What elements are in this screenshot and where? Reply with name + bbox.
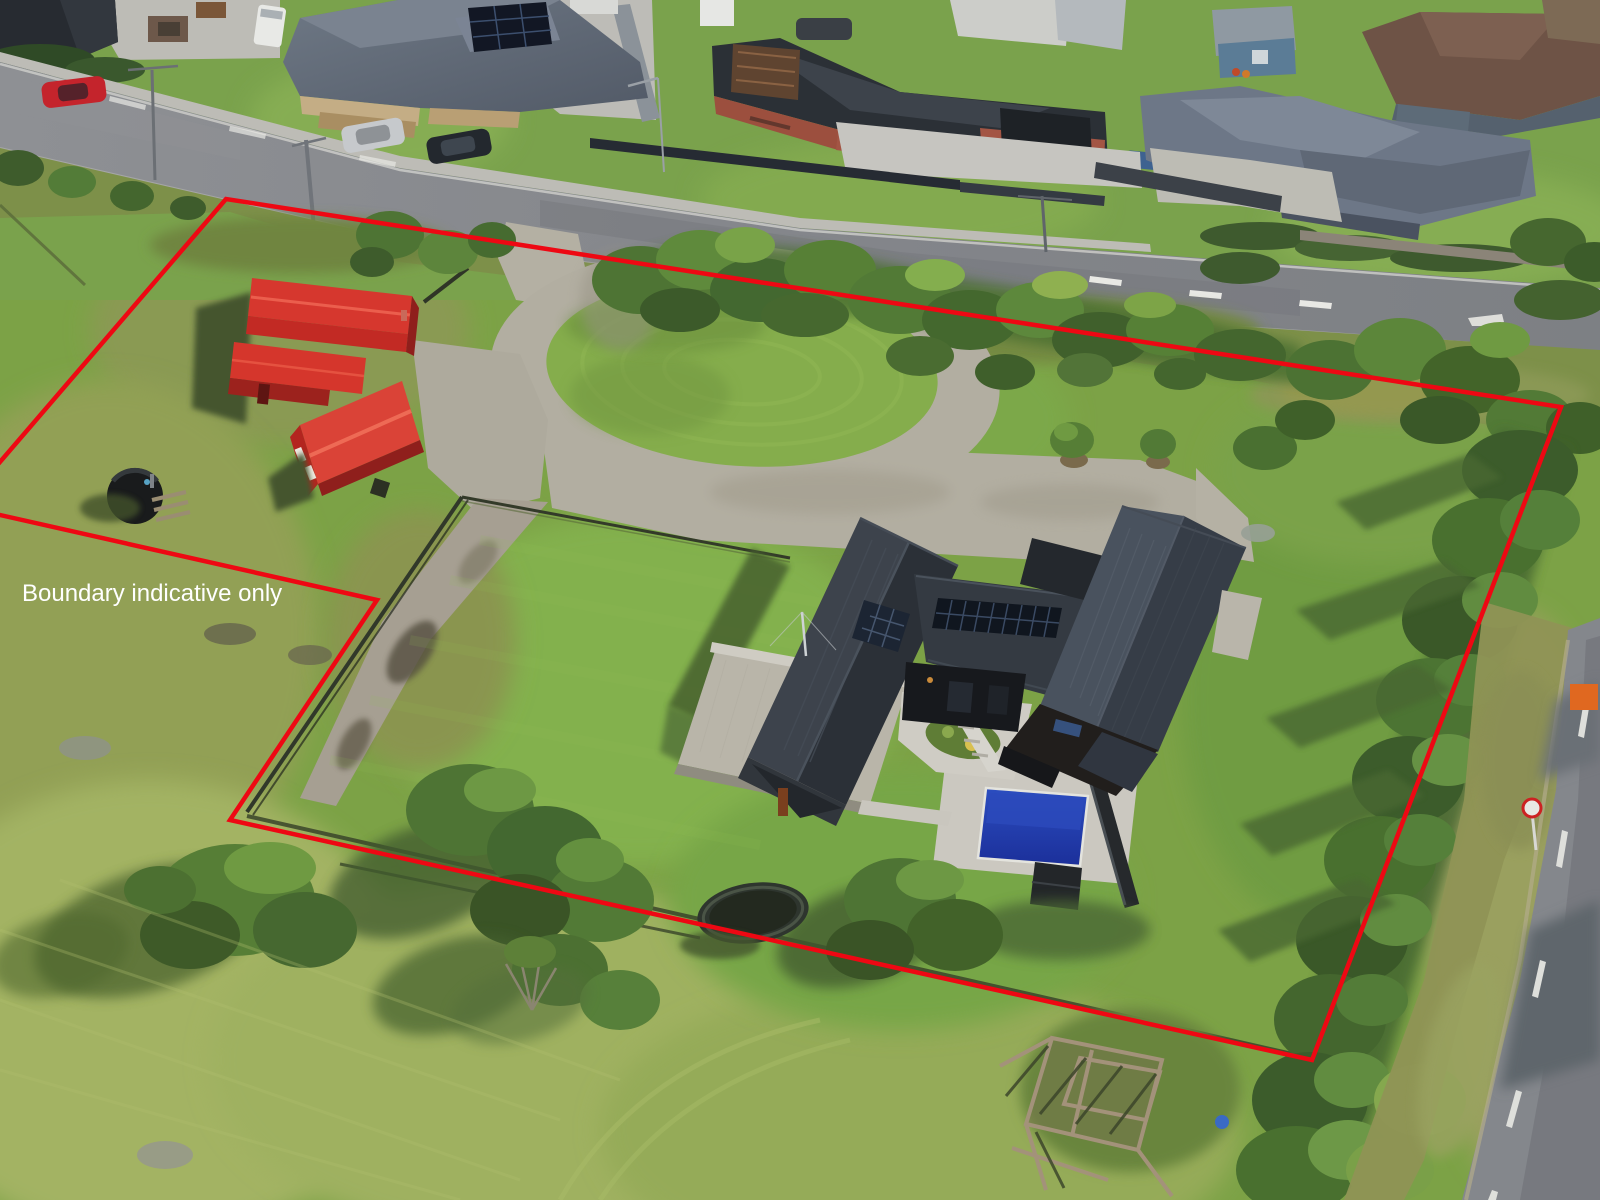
svg-text:Boundary indicative only: Boundary indicative only — [22, 580, 282, 607]
